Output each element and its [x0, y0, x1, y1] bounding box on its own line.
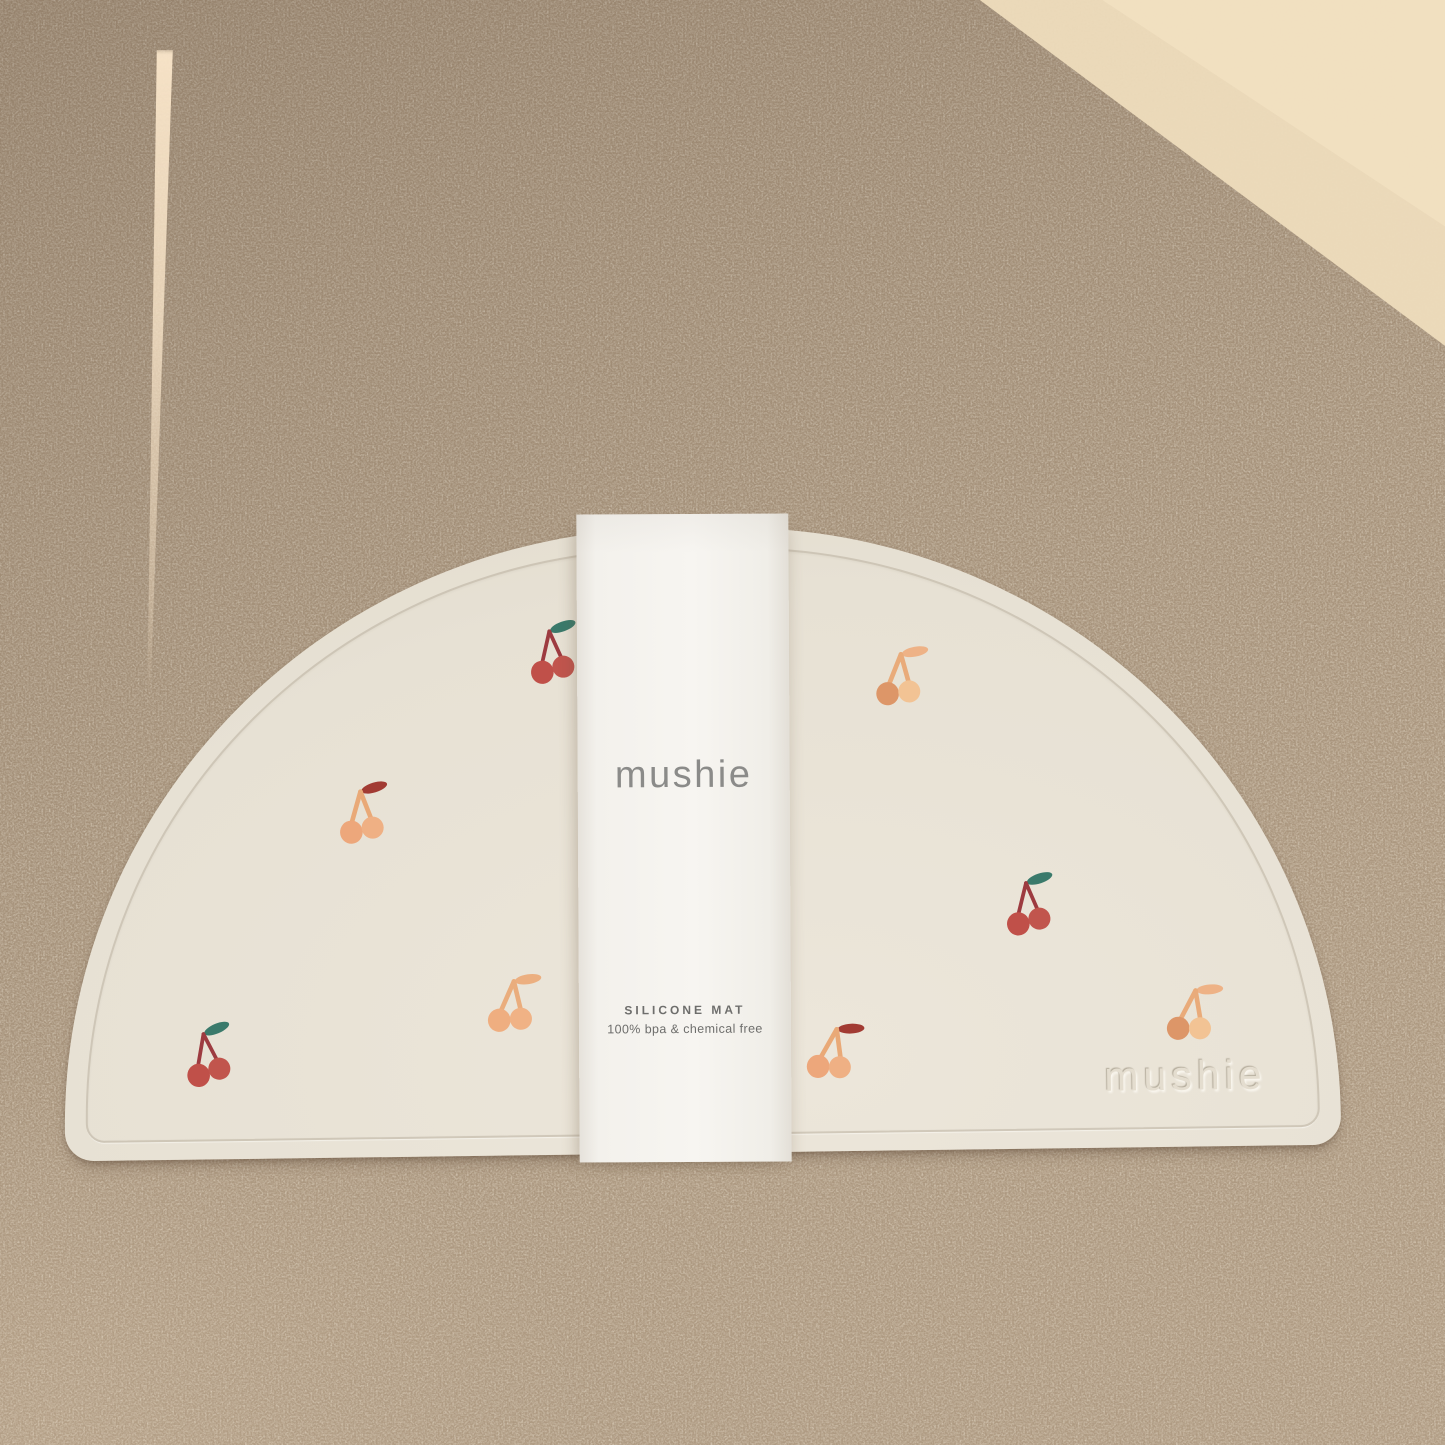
cherry-icon: [175, 1018, 242, 1090]
cherry-icon: [800, 1013, 869, 1087]
cherry-icon: [482, 968, 546, 1037]
brand-name: mushie: [578, 753, 790, 797]
cherry-icon: [333, 779, 394, 846]
product-name: SILICONE MAT: [579, 1002, 791, 1017]
packaging-sleeve: mushie SILICONE MAT 100% bpa & chemical …: [576, 513, 791, 1162]
cherry-icon: [871, 642, 933, 709]
cherry-icon: [1161, 975, 1229, 1047]
embossed-brand-logo: mushie: [1104, 1050, 1341, 1100]
product-photo: mushie mushie SILICONE MAT 100% bpa & ch…: [0, 0, 1445, 1445]
cherry-icon: [998, 869, 1061, 938]
product-tagline: 100% bpa & chemical free: [579, 1021, 791, 1036]
